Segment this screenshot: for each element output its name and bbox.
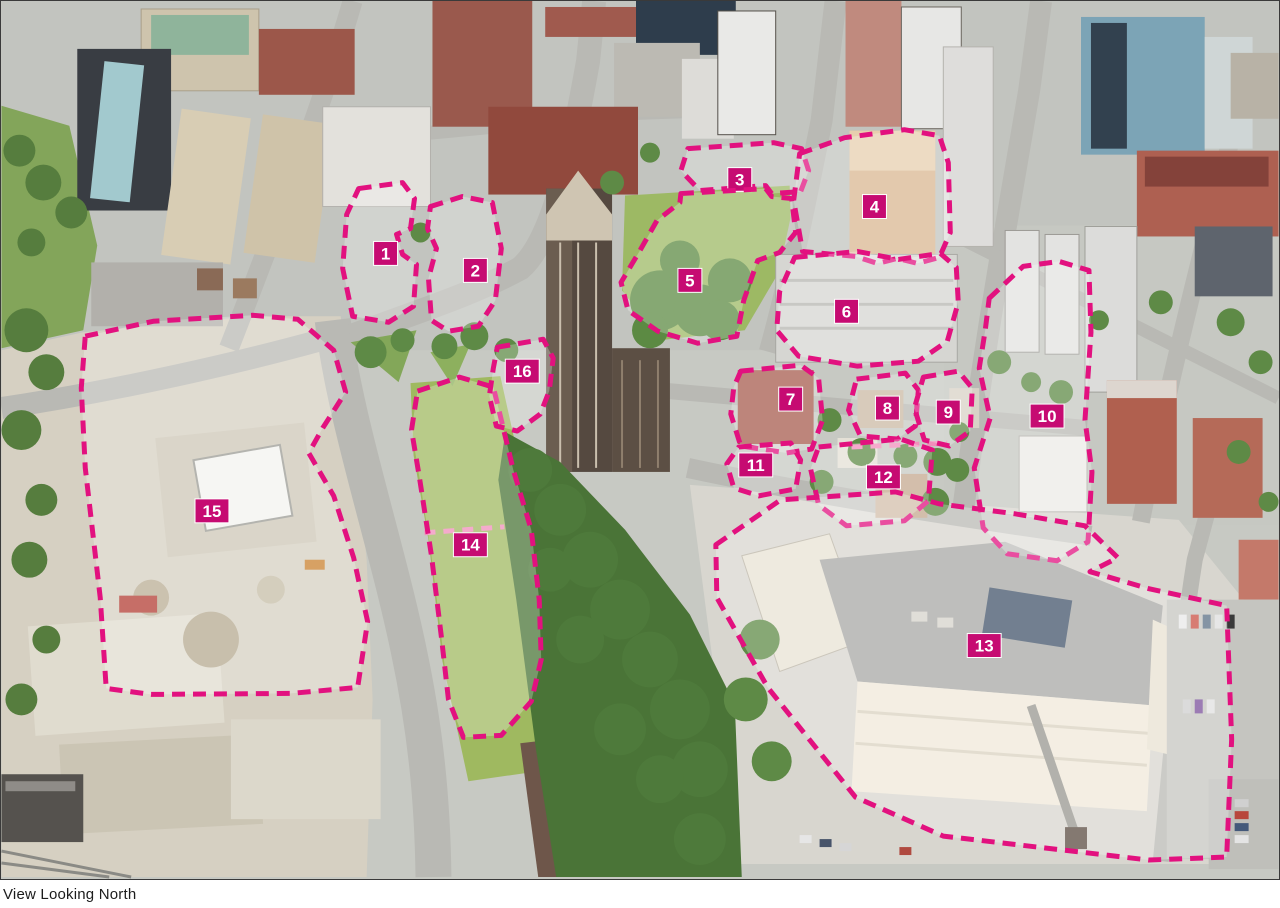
- page: 12345678910111213141516 View Looking Nor…: [0, 0, 1280, 908]
- caption: View Looking North: [0, 886, 136, 903]
- aerial-photo: 12345678910111213141516: [0, 0, 1280, 880]
- aerial-scene: [1, 1, 1279, 879]
- caption-bar: View Looking North: [0, 880, 1280, 908]
